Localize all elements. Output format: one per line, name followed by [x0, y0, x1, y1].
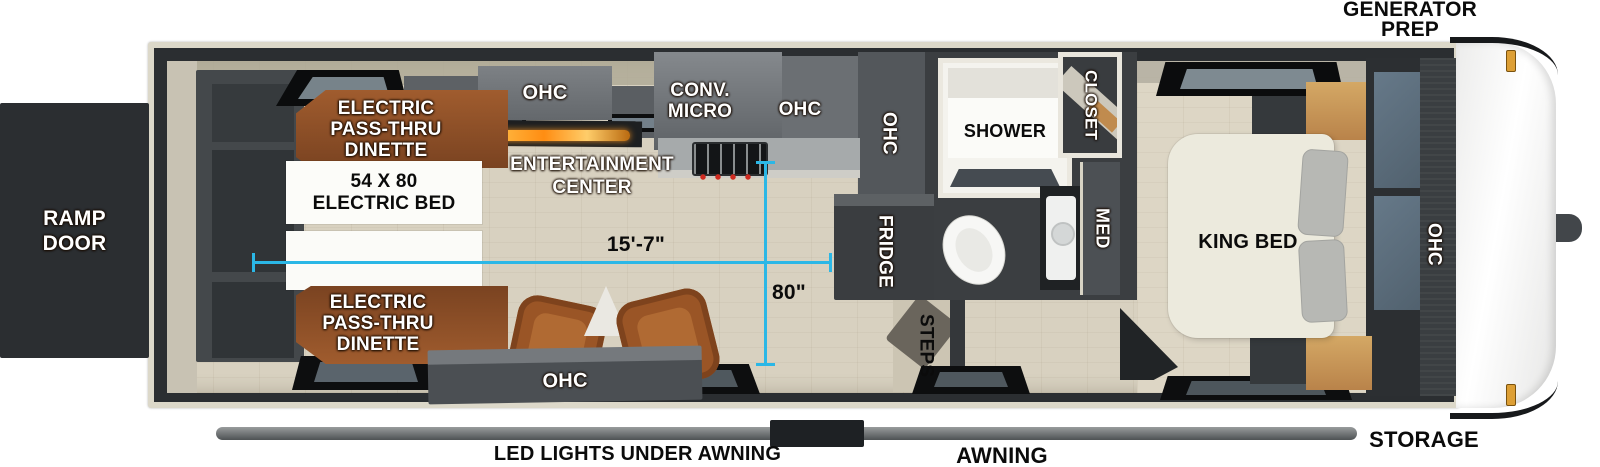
- measure-cap: [252, 253, 255, 272]
- dinette-bottom-line: ELECTRIC: [287, 292, 469, 313]
- cap-trim-top: [1450, 37, 1558, 81]
- king-bed-label: KING BED: [1168, 232, 1328, 254]
- fridge-top-face: [834, 194, 934, 206]
- nightstand-dark: [1250, 334, 1308, 384]
- bedroom-ohc-label-wrap: OHC: [1420, 206, 1456, 282]
- washer: [1040, 186, 1082, 290]
- measure-cap: [829, 253, 832, 272]
- wardrobe-panel: [1374, 196, 1422, 310]
- floor-mat-glass: [934, 372, 1008, 387]
- interior-wall-band-left: [167, 61, 197, 393]
- ramp-door-label: DOOR: [43, 231, 107, 256]
- toilet-seat: [948, 222, 1000, 279]
- shower-label: SHOWER: [938, 122, 1072, 141]
- pillow: [1297, 149, 1349, 238]
- steps-label: STEPS: [905, 300, 945, 392]
- storage-label: STORAGE: [1322, 428, 1526, 452]
- ohc-island-label: OHC: [542, 358, 588, 393]
- generator-prep-line: PREP: [1305, 20, 1515, 40]
- fridge-label: FRIDGE: [874, 207, 895, 288]
- width-measurement-label: 80": [772, 282, 842, 305]
- marker-light: [1506, 50, 1516, 72]
- led-lights-label: LED LIGHTS UNDER AWNING: [410, 444, 865, 466]
- burner-knobs: [698, 174, 754, 180]
- closet-label: CLOSET: [1081, 70, 1100, 140]
- entertainment-line: CENTER: [492, 176, 692, 199]
- nightstand-wood: [1306, 82, 1372, 140]
- marker-light: [1506, 384, 1516, 406]
- measure-cap: [756, 161, 775, 164]
- conv-micro-label: CONV. MICRO: [636, 80, 764, 122]
- conv-micro-line: CONV.: [636, 80, 764, 101]
- ohc-kitchen-label: OHC: [768, 100, 832, 121]
- entertainment-line: ENTERTAINMENT: [492, 153, 692, 176]
- electric-bed-line: ELECTRIC BED: [313, 193, 456, 215]
- measure-line-width: [764, 163, 767, 366]
- ohc-garage-label: OHC: [522, 82, 567, 104]
- dinette-top-line: DINETTE: [295, 140, 477, 161]
- entertainment-center-label: ENTERTAINMENT CENTER: [492, 153, 692, 199]
- nightstand-wood: [1306, 336, 1372, 390]
- measure-line-length: [254, 261, 830, 264]
- closet-label-wrap: CLOSET: [1058, 52, 1122, 158]
- ohc-kitchen-text: OHC: [768, 100, 832, 121]
- garage-wall-panel: [212, 282, 294, 358]
- window-glass: [314, 362, 418, 382]
- length-measurement-label: 15'-7": [576, 234, 696, 257]
- electric-bed-label-box: 54 X 80 ELECTRIC BED: [286, 161, 482, 224]
- cap-trim-bottom: [1450, 375, 1558, 419]
- conv-micro-line: MICRO: [636, 101, 764, 122]
- garage-wall-panel: [212, 84, 294, 142]
- dinette-top-label: ELECTRIC PASS-THRU DINETTE: [295, 98, 477, 161]
- fridge: FRIDGE: [834, 194, 934, 300]
- cooktop: [692, 142, 768, 176]
- med-cabinet: MED: [1080, 162, 1120, 295]
- front-cap: [1456, 42, 1556, 408]
- ohc-pantry-label: OHC: [878, 112, 899, 155]
- dinette-bottom-line: PASS-THRU: [287, 313, 469, 334]
- shower-wall-shade: [948, 68, 1062, 98]
- bedroom-skylight-glass: [1180, 69, 1318, 89]
- dinette-top-line: ELECTRIC: [295, 98, 477, 119]
- dinette-bottom-line: DINETTE: [287, 334, 469, 355]
- med-label: MED: [1092, 208, 1112, 249]
- generator-prep-line: GENERATOR: [1305, 0, 1515, 20]
- shower-tray: [950, 169, 1060, 187]
- steps-text: STEPS: [915, 314, 936, 377]
- bedroom-ohc-label: OHC: [1423, 223, 1444, 266]
- dinette-bottom-label: ELECTRIC PASS-THRU DINETTE: [287, 292, 469, 355]
- washer-window: [1051, 222, 1075, 246]
- ramp-door-panel: RAMP DOOR: [0, 103, 149, 358]
- awning-label: AWNING: [902, 444, 1102, 467]
- generator-prep-label: GENERATOR PREP: [1305, 0, 1515, 40]
- floorplan-canvas: RAMP DOOR OHC ELECTRIC PASS-THRU DINETTE…: [0, 0, 1600, 467]
- dinette-top-line: PASS-THRU: [295, 119, 477, 140]
- wardrobe-panel: [1374, 72, 1422, 188]
- electric-bed-line: 54 X 80: [351, 171, 418, 193]
- measure-cap: [756, 363, 775, 366]
- ramp-door-label: RAMP: [43, 206, 106, 231]
- awning-motor: [770, 420, 864, 447]
